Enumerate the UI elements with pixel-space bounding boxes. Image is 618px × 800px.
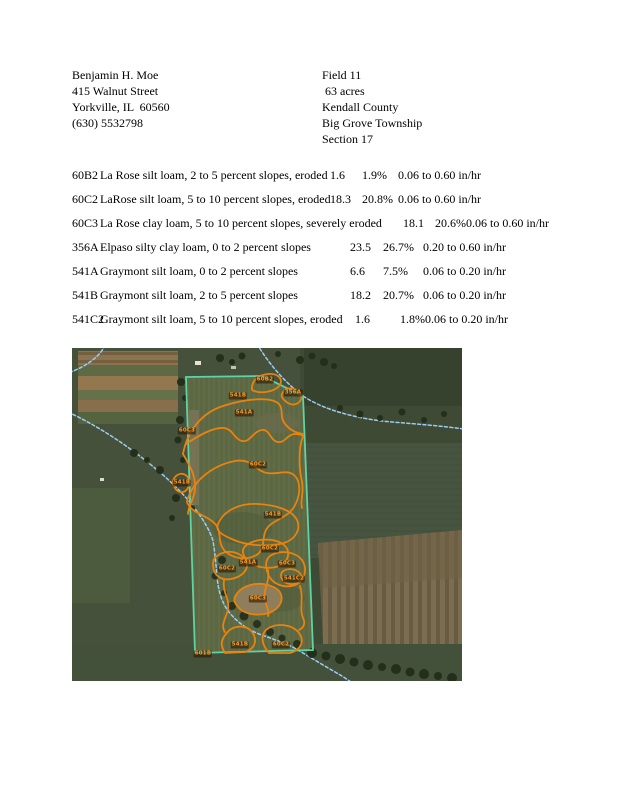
soil-acres: 6.6 — [350, 264, 365, 279]
field-township: Big Grove Township — [322, 115, 422, 131]
soil-infiltration-rate: 0.06 to 0.60 in/hr — [466, 216, 549, 230]
owner-street: 415 Walnut Street — [72, 83, 170, 99]
soil-percent: 7.5% — [383, 264, 408, 279]
soil-infiltration-rate: 0.06 to 0.60 in/hr — [398, 168, 481, 183]
owner-name: Benjamin H. Moe — [72, 67, 170, 83]
soil-description: La Rose silt loam, 2 to 5 percent slopes… — [100, 168, 328, 183]
soil-percent: 1.9% — [362, 168, 387, 183]
soil-description: Graymont silt loam, 2 to 5 percent slope… — [100, 288, 298, 303]
soil-map-label: 601B — [194, 651, 212, 658]
soil-acres: 23.5 — [350, 240, 371, 255]
soil-percent-infiltration: 1.8%0.06 to 0.20 in/hr — [400, 312, 508, 327]
soil-acres: 18.3 — [330, 192, 351, 207]
soil-map-label: 541A — [239, 560, 258, 567]
soil-description: La Rose clay loam, 5 to 10 percent slope… — [100, 216, 382, 231]
soil-code: 356A — [72, 240, 99, 255]
owner-block: Benjamin H. Moe 415 Walnut Street Yorkvi… — [72, 67, 170, 131]
soil-percent: 26.7% — [383, 240, 414, 255]
soil-acres: 18.2 — [350, 288, 371, 303]
soil-infiltration-rate: 0.06 to 0.20 in/hr — [423, 288, 506, 303]
soil-map-label: 60C3 — [278, 561, 296, 568]
soil-table-row: 60C3La Rose clay loam, 5 to 10 percent s… — [72, 212, 602, 236]
soil-infiltration-rate: 0.06 to 0.20 in/hr — [423, 264, 506, 279]
soil-description: Graymont silt loam, 0 to 2 percent slope… — [100, 264, 298, 279]
soil-map-label: 541C2 — [283, 576, 305, 583]
field-acres: 63 acres — [322, 83, 422, 99]
field-info-block: Field 11 63 acres Kendall County Big Gro… — [322, 67, 422, 147]
soil-percent: 20.6% — [435, 216, 466, 230]
soil-table-row: 60B2La Rose silt loam, 2 to 5 percent sl… — [72, 164, 602, 188]
soil-map-labels: 60B2356A541B541A60C360C2541B541B60C2541A… — [72, 348, 462, 681]
field-name: Field 11 — [322, 67, 422, 83]
soil-map-label: 60B2 — [256, 377, 274, 384]
field-section: Section 17 — [322, 131, 422, 147]
soil-percent-infiltration: 20.6%0.06 to 0.60 in/hr — [435, 216, 549, 231]
soil-percent: 1.8% — [400, 312, 425, 326]
soil-map-label: 60C3 — [178, 428, 196, 435]
soil-table-row: 541C2Graymont silt loam, 5 to 10 percent… — [72, 308, 602, 332]
soil-infiltration-rate: 0.20 to 0.60 in/hr — [423, 240, 506, 255]
document-page: Benjamin H. Moe 415 Walnut Street Yorkvi… — [0, 0, 618, 800]
soil-infiltration-rate: 0.06 to 0.20 in/hr — [425, 312, 508, 326]
field-county: Kendall County — [322, 99, 422, 115]
soil-table: 60B2La Rose silt loam, 2 to 5 percent sl… — [72, 164, 602, 332]
soil-code: 60B2 — [72, 168, 98, 183]
soil-map-label: 541B — [229, 393, 247, 400]
owner-phone: (630) 5532798 — [72, 115, 170, 131]
soil-code: 60C2 — [72, 192, 98, 207]
soil-acres: 18.1 — [403, 216, 424, 231]
soil-table-row: 60C2LaRose silt loam, 5 to 10 percent sl… — [72, 188, 602, 212]
soil-code: 60C3 — [72, 216, 98, 231]
soil-code: 541A — [72, 264, 99, 279]
soil-description: LaRose silt loam, 5 to 10 percent slopes… — [100, 192, 331, 207]
soil-acres: 1.6 — [330, 168, 345, 183]
soil-description: Elpaso silty clay loam, 0 to 2 percent s… — [100, 240, 311, 255]
soil-map-label: 60C2 — [249, 462, 267, 469]
soil-map-label: 541A — [235, 410, 254, 417]
soil-map-label: 60C3 — [249, 596, 267, 603]
soil-percent: 20.8% — [362, 192, 393, 207]
soil-percent: 20.7% — [383, 288, 414, 303]
soil-infiltration-rate: 0.06 to 0.60 in/hr — [398, 192, 481, 207]
soil-map-label: 541B — [173, 480, 191, 487]
soil-map-label: 356A — [284, 390, 303, 397]
soil-table-row: 541BGraymont silt loam, 2 to 5 percent s… — [72, 284, 602, 308]
soil-table-row: 356AElpaso silty clay loam, 0 to 2 perce… — [72, 236, 602, 260]
soil-map-label: 541B — [264, 512, 282, 519]
soil-map-label: 60C2 — [218, 566, 236, 573]
soil-map-label: 541B — [231, 642, 249, 649]
soil-map-label: 60C2 — [272, 642, 290, 649]
soil-acres: 1.6 — [355, 312, 370, 327]
soil-description: Graymont silt loam, 5 to 10 percent slop… — [100, 312, 343, 327]
soil-table-row: 541AGraymont silt loam, 0 to 2 percent s… — [72, 260, 602, 284]
soil-code: 541B — [72, 288, 98, 303]
soil-map: 60B2356A541B541A60C360C2541B541B60C2541A… — [72, 348, 462, 681]
soil-map-label: 60C2 — [261, 546, 279, 553]
owner-city: Yorkville, IL 60560 — [72, 99, 170, 115]
